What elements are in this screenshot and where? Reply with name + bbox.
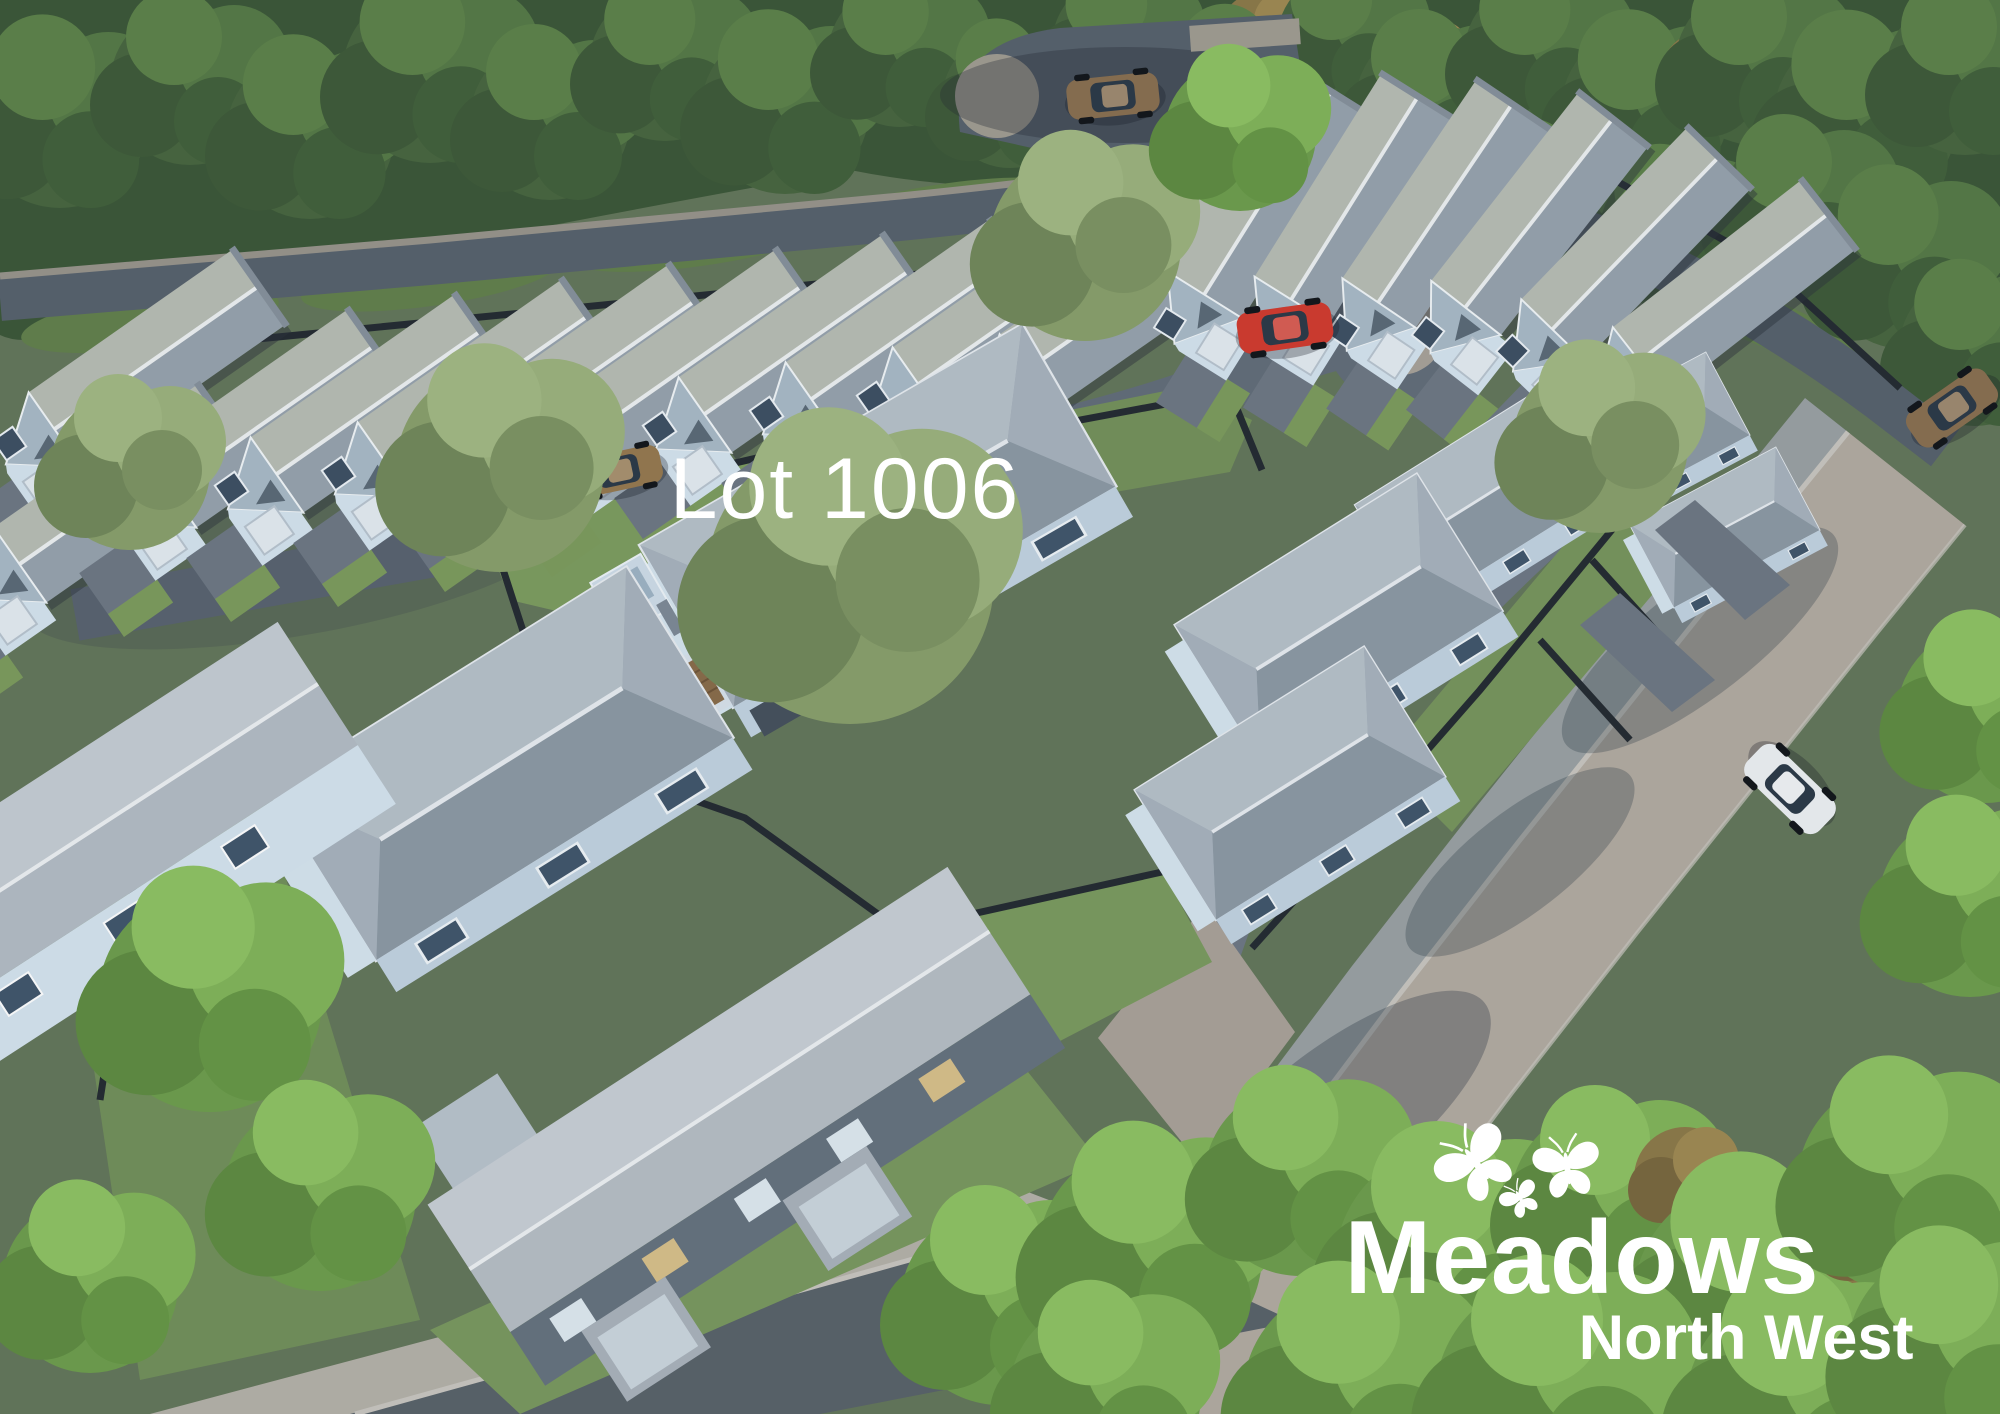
aerial-render: Lot 1006 Meadows North West	[0, 0, 2000, 1414]
lot-label: Lot 1006	[670, 441, 1021, 537]
logo-region: North West	[1579, 1303, 1914, 1373]
logo-brand: Meadows	[1344, 1200, 1819, 1316]
